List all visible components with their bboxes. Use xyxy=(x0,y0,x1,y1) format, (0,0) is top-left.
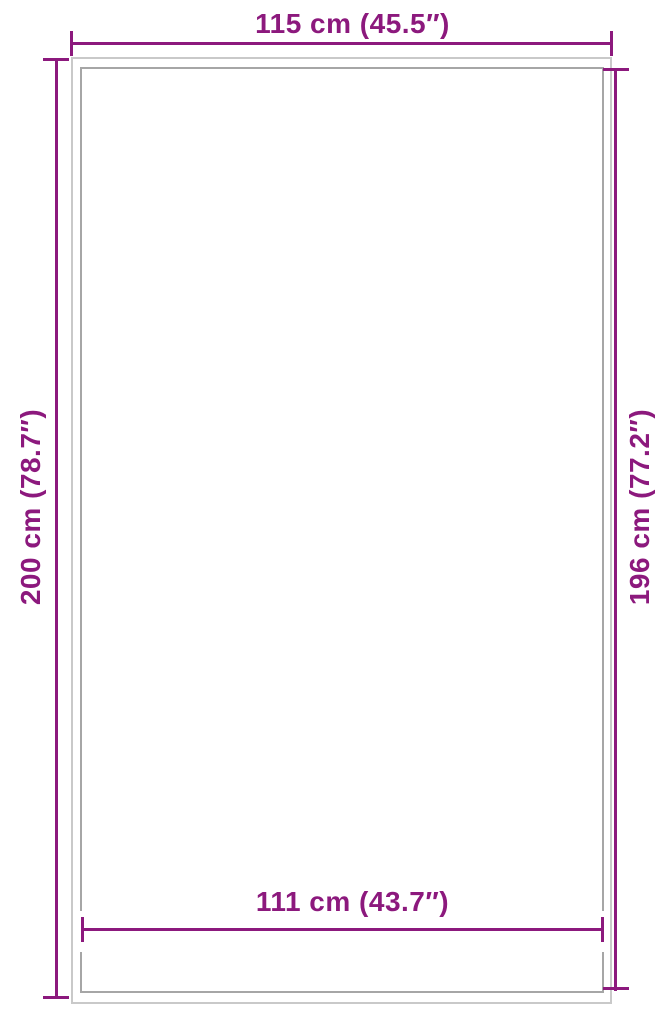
product-outline-inner xyxy=(80,67,604,993)
dimension-diagram: 115 cm (45.5″) 111 cm (43.7″) 200 cm (78… xyxy=(0,0,662,1020)
dimension-tick-right-top xyxy=(603,68,629,71)
dimension-tick-bottom-right xyxy=(601,917,604,942)
dimension-line-top xyxy=(71,42,612,45)
dimension-line-right xyxy=(614,69,617,991)
dimension-tick-left-bottom xyxy=(43,996,69,999)
dimension-tick-right-bottom xyxy=(603,987,629,990)
dimension-tick-left-top xyxy=(43,58,69,61)
dimension-label-left: 200 cm (78.7″) xyxy=(13,357,49,657)
dimension-tick-bottom-left xyxy=(81,917,84,942)
dimension-line-left xyxy=(55,59,58,999)
dimension-line-bottom xyxy=(82,928,603,931)
dimension-label-bottom: 111 cm (43.7″) xyxy=(82,884,623,920)
dimension-tick-top-left xyxy=(70,31,73,56)
dimension-label-right: 196 cm (77.2″) xyxy=(622,357,658,657)
dimension-label-top: 115 cm (45.5″) xyxy=(82,6,623,42)
